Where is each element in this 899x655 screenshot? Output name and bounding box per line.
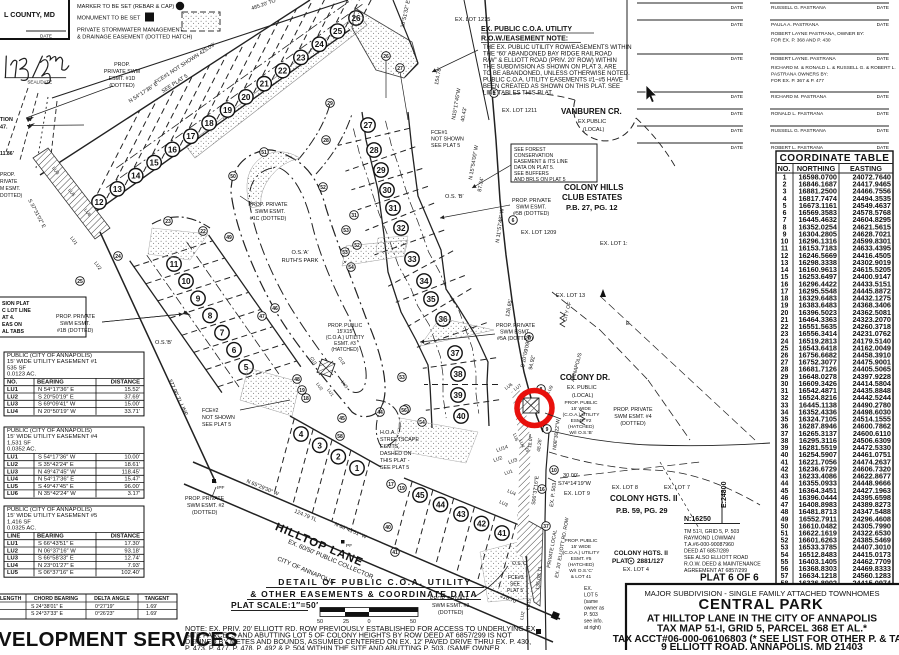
svg-text:DATE: DATE xyxy=(731,128,743,134)
svg-text:0.0123 AC.: 0.0123 AC. xyxy=(7,371,37,377)
svg-text:BEARING: BEARING xyxy=(37,380,64,386)
svg-text:15' WIDE UTILITY EASEMENT: 15' WIDE UTILITY EASEMENT #4 xyxy=(7,434,98,440)
svg-text:0°26′23″: 0°26′23″ xyxy=(95,611,114,617)
svg-text:LU5: LU5 xyxy=(7,570,19,576)
svg-text:PROP. PRIVATE: PROP. PRIVATE xyxy=(512,198,552,204)
svg-text:LU2: LU2 xyxy=(7,394,18,400)
svg-text:P.B. 59, PG. 29: P.B. 59, PG. 29 xyxy=(616,506,668,515)
svg-text:S 06°37′16″ E: S 06°37′16″ E xyxy=(38,570,74,576)
svg-text:EX. LOT 13: EX. LOT 13 xyxy=(556,293,585,299)
svg-text:PRIVATE STORMWATER MANAGEMENT: PRIVATE STORMWATER MANAGEMENT xyxy=(77,28,184,34)
svg-text:10: 10 xyxy=(781,239,789,246)
svg-text:41: 41 xyxy=(781,459,789,466)
svg-text:LU3: LU3 xyxy=(7,469,19,475)
svg-text:NO.: NO. xyxy=(7,380,18,386)
svg-text:PAULA A. PASTRANA: PAULA A. PASTRANA xyxy=(771,22,819,28)
svg-text:28: 28 xyxy=(781,367,789,374)
svg-text:CLUB ESTATES: CLUB ESTATES xyxy=(562,193,623,202)
svg-text:EX. PUBLIC C.O.A. UTILITY: EX. PUBLIC C.O.A. UTILITY xyxy=(481,26,572,33)
svg-text:EX. LOT 8: EX. LOT 8 xyxy=(612,485,638,491)
svg-text:7.93': 7.93' xyxy=(128,563,140,569)
svg-text:LU2: LU2 xyxy=(7,548,18,554)
svg-text:6: 6 xyxy=(512,218,515,224)
svg-text:SWM ESMT. #3: SWM ESMT. #3 xyxy=(432,603,469,609)
svg-text:(C.O.A.) UTILITY: (C.O.A.) UTILITY xyxy=(563,550,601,556)
svg-text:56: 56 xyxy=(401,408,407,414)
svg-text:16: 16 xyxy=(168,145,178,154)
svg-text:(DOTTED): (DOTTED) xyxy=(438,610,464,616)
svg-text:EX. PUBLIC: EX. PUBLIC xyxy=(567,385,597,391)
svg-text:(LOCAL): (LOCAL) xyxy=(583,127,604,133)
svg-text:S 20°50′19″ E: S 20°50′19″ E xyxy=(38,394,74,400)
svg-text:38: 38 xyxy=(453,370,463,379)
svg-text:9: 9 xyxy=(196,294,201,303)
svg-text:S74°14′19″W: S74°14′19″W xyxy=(558,481,592,487)
svg-text:N 06°37′16″ W: N 06°37′16″ W xyxy=(38,548,76,554)
svg-text:LU6: LU6 xyxy=(7,491,19,497)
svg-text:COORDINATE TABLE: COORDINATE TABLE xyxy=(780,153,890,164)
svg-text:15: 15 xyxy=(150,159,160,168)
svg-text:M ESMT.: M ESMT. xyxy=(0,186,20,192)
svg-text:48: 48 xyxy=(294,377,300,383)
svg-text:29: 29 xyxy=(376,166,386,175)
svg-text:48: 48 xyxy=(781,509,789,516)
svg-text:W/I O.S.'B': W/I O.S.'B' xyxy=(569,430,592,436)
svg-text:5: 5 xyxy=(783,203,787,210)
svg-text:CENTRAL PARK: CENTRAL PARK xyxy=(699,597,824,613)
svg-text:(DOTTED): (DOTTED) xyxy=(620,421,646,427)
svg-text:39: 39 xyxy=(781,445,789,452)
svg-text:(LOCAL): (LOCAL) xyxy=(572,393,593,399)
svg-text:22: 22 xyxy=(781,324,789,331)
svg-text:32: 32 xyxy=(396,224,406,233)
svg-text:19: 19 xyxy=(781,303,789,310)
svg-text:1,416 SF: 1,416 SF xyxy=(7,519,31,525)
svg-text:SEE PLAT 5: SEE PLAT 5 xyxy=(202,422,231,428)
svg-text:PLAT: PLAT xyxy=(612,558,628,565)
svg-text:LENGTH: LENGTH xyxy=(0,596,22,602)
svg-text:35: 35 xyxy=(781,417,789,424)
svg-text:EX. LOT 1215: EX. LOT 1215 xyxy=(455,17,490,23)
svg-text:MARKER TO BE SET (REBAR & CAP): MARKER TO BE SET (REBAR & CAP) xyxy=(77,4,174,10)
svg-text:53: 53 xyxy=(343,228,349,234)
svg-text:44: 44 xyxy=(781,481,789,488)
svg-text:& OTHER EASEMENTS & COORDINATE: & OTHER EASEMENTS & COORDINATE DATA xyxy=(250,589,478,599)
svg-text:(C.O.A.) UTILITY: (C.O.A.) UTILITY xyxy=(563,412,601,418)
svg-text:12: 12 xyxy=(781,253,789,260)
svg-text:2: 2 xyxy=(336,453,341,462)
svg-text:4: 4 xyxy=(783,196,787,203)
svg-text:53: 53 xyxy=(399,375,405,381)
svg-text:DATE: DATE xyxy=(877,94,889,100)
svg-text:51: 51 xyxy=(261,150,267,156)
svg-text:42: 42 xyxy=(781,466,789,473)
svg-text:50: 50 xyxy=(781,523,789,530)
svg-text:AND BRLS ON PLAT 5: AND BRLS ON PLAT 5 xyxy=(514,177,566,183)
svg-text:O.S.'C': O.S.'C' xyxy=(512,561,528,567)
svg-text:36: 36 xyxy=(781,424,789,431)
svg-text:N 49°47′45″ W: N 49°47′45″ W xyxy=(38,469,76,475)
svg-text:MONUMENT TO BE SET: MONUMENT TO BE SET xyxy=(77,16,141,22)
svg-text:43: 43 xyxy=(456,510,466,519)
svg-text:33: 33 xyxy=(407,255,417,264)
svg-text:17.30': 17.30' xyxy=(124,541,140,547)
svg-text:COLONY HGTS. II: COLONY HGTS. II xyxy=(610,494,677,503)
svg-text:O.S. ′B′: O.S. ′B′ xyxy=(445,194,464,200)
svg-text:FCE#2: FCE#2 xyxy=(202,408,219,414)
svg-text:SWM ESMT. #2: SWM ESMT. #2 xyxy=(187,503,224,509)
svg-text:4: 4 xyxy=(299,430,304,439)
svg-text:10.00': 10.00' xyxy=(124,455,140,461)
svg-text:N 20°50′19″ W: N 20°50′19″ W xyxy=(38,409,76,415)
svg-text:EX. LOT 4: EX. LOT 4 xyxy=(623,567,649,573)
svg-text:DATE: DATE xyxy=(731,22,743,28)
svg-text:LU3: LU3 xyxy=(7,556,19,562)
svg-text:PROP. PRIVATE: PROP. PRIVATE xyxy=(248,202,288,208)
svg-text:ROBERT LAYNE PASTRANA, OWNER: ROBERT LAYNE PASTRANA, OWNER BY: xyxy=(771,31,864,37)
svg-text:N 23°01′27″ E: N 23°01′27″ E xyxy=(38,563,74,569)
svg-text:L COUNTY, MD: L COUNTY, MD xyxy=(4,10,55,19)
svg-text:TION: TION xyxy=(0,117,13,123)
svg-text:17: 17 xyxy=(186,132,196,141)
svg-text:52: 52 xyxy=(781,538,789,545)
svg-text:LU3: LU3 xyxy=(7,402,19,408)
svg-text:FCE#1: FCE#1 xyxy=(431,130,448,136)
svg-text:PROP. PUBLIC: PROP. PUBLIC xyxy=(565,538,599,544)
svg-text:26: 26 xyxy=(383,54,389,60)
svg-text:53: 53 xyxy=(781,545,789,552)
svg-text:15.00': 15.00' xyxy=(124,402,140,408)
svg-text:COLONY DR.: COLONY DR. xyxy=(560,373,610,382)
svg-text:27: 27 xyxy=(363,121,373,130)
svg-text:27: 27 xyxy=(397,66,403,72)
svg-text:DATE: DATE xyxy=(877,56,889,62)
svg-text:LINE TABLES THIS PLAT.: LINE TABLES THIS PLAT. xyxy=(483,91,553,97)
svg-text:8: 8 xyxy=(783,224,787,231)
svg-text:ESMT. #5: ESMT. #5 xyxy=(571,556,592,562)
svg-text:DATE: DATE xyxy=(731,111,743,117)
svg-text:W/I O.S.'C': W/I O.S.'C' xyxy=(569,568,593,574)
svg-text:7: 7 xyxy=(220,329,225,338)
svg-text:& DRAINAGE EASEMENT (DOTTED HA: & DRAINAGE EASEMENT (DOTTED HATCH) xyxy=(77,35,193,41)
svg-text:O.S.′A′: O.S.′A′ xyxy=(291,250,308,256)
svg-text:9: 9 xyxy=(546,427,549,433)
svg-text:20: 20 xyxy=(781,310,789,317)
svg-text:RONALD L. PASTRANA: RONALD L. PASTRANA xyxy=(771,111,824,117)
svg-text:6: 6 xyxy=(783,210,787,217)
svg-text:LU4: LU4 xyxy=(7,409,19,415)
svg-text:56: 56 xyxy=(781,566,789,573)
svg-text:15' WIDE UTILITY EASEMENT: 15' WIDE UTILITY EASEMENT #5 xyxy=(7,513,98,519)
svg-text:DATE: DATE xyxy=(877,111,889,117)
svg-text:COLONY HILLS: COLONY HILLS xyxy=(564,183,624,192)
svg-text:RICHARD M. PASTRANA: RICHARD M. PASTRANA xyxy=(771,94,827,100)
svg-text:18: 18 xyxy=(303,396,309,402)
svg-text:535 SF: 535 SF xyxy=(7,365,26,371)
svg-text:19: 19 xyxy=(399,486,405,492)
svg-text:(DOTTED): (DOTTED) xyxy=(192,510,218,516)
svg-text:46: 46 xyxy=(781,495,789,502)
svg-text:PLAT 6 OF 6: PLAT 6 OF 6 xyxy=(700,573,759,584)
svg-text:30: 30 xyxy=(781,381,789,388)
svg-text:49: 49 xyxy=(226,235,232,241)
svg-text:24: 24 xyxy=(115,254,121,260)
svg-text:DATE: DATE xyxy=(731,5,743,11)
svg-text:29: 29 xyxy=(327,101,333,107)
svg-text:S 66°43′51″ E: S 66°43′51″ E xyxy=(38,541,74,547)
svg-text:NOT SHOWN: NOT SHOWN xyxy=(431,137,464,143)
svg-text:23: 23 xyxy=(781,331,789,338)
svg-text:FOR EX. P. 368 AND P. 430: FOR EX. P. 368 AND P. 430 xyxy=(771,38,831,44)
svg-text:TM 51-I, GRID 5, P. 503: TM 51-I, GRID 5, P. 503 xyxy=(684,529,739,535)
svg-text:37.69': 37.69' xyxy=(124,394,140,400)
svg-text:39: 39 xyxy=(453,391,463,400)
svg-text:COLONY HGTS. II: COLONY HGTS. II xyxy=(614,550,668,557)
svg-text:& LOT 41: & LOT 41 xyxy=(571,574,592,580)
svg-text:1.69': 1.69' xyxy=(146,604,157,610)
svg-text:54: 54 xyxy=(781,552,789,559)
svg-text:FOR EX. P. 367 & P. 477: FOR EX. P. 367 & P. 477 xyxy=(771,78,824,84)
svg-text:PROP. PRIVATE: PROP. PRIVATE xyxy=(613,407,653,413)
svg-text:41: 41 xyxy=(497,529,507,538)
svg-text:118.45': 118.45' xyxy=(122,469,140,475)
svg-text:S 49°47′45″ E: S 49°47′45″ E xyxy=(38,484,74,490)
svg-text:(HATCHED): (HATCHED) xyxy=(568,424,594,430)
svg-text:NO.: NO. xyxy=(778,164,791,173)
svg-text:LU5: LU5 xyxy=(7,484,19,490)
svg-text:PRIVATE SWM: PRIVATE SWM xyxy=(104,69,140,75)
svg-text:96.00': 96.00' xyxy=(124,484,140,490)
svg-text:14: 14 xyxy=(131,172,141,181)
svg-text:PROP.: PROP. xyxy=(114,62,130,68)
svg-text:RUTH'S PARK: RUTH'S PARK xyxy=(282,258,319,264)
svg-text:25: 25 xyxy=(781,345,789,352)
svg-text:S 24°37′33″ E: S 24°37′33″ E xyxy=(31,611,64,617)
svg-text:3.17': 3.17' xyxy=(128,491,140,497)
svg-text:IPF: IPF xyxy=(217,485,225,491)
svg-text:15: 15 xyxy=(781,274,789,281)
svg-text:0.0325 AC.: 0.0325 AC. xyxy=(7,525,37,531)
svg-text:PASTRANA OWNERS BY:: PASTRANA OWNERS BY: xyxy=(771,72,828,78)
svg-text:17: 17 xyxy=(781,288,789,295)
svg-text:PUBLIC (CITY OF ANNAPOLIS): PUBLIC (CITY OF ANNAPOLIS) xyxy=(7,353,92,359)
svg-text:TO BE ABANDONED, UNLESS OT: TO BE ABANDONED, UNLESS OTHERWISE NOTED. xyxy=(483,71,630,77)
svg-text:SWM ESMT.: SWM ESMT. xyxy=(255,209,285,215)
svg-text:14: 14 xyxy=(781,267,789,274)
svg-text:50: 50 xyxy=(230,174,236,180)
svg-text:DISTANCE: DISTANCE xyxy=(111,534,140,540)
svg-text:FCE#3: FCE#3 xyxy=(508,575,524,581)
svg-text:24: 24 xyxy=(315,40,325,49)
svg-text:13: 13 xyxy=(781,260,789,267)
svg-text:at right): at right) xyxy=(584,625,601,631)
svg-text:EX. LOT 1211: EX. LOT 1211 xyxy=(502,108,537,114)
svg-text:12: 12 xyxy=(94,198,104,207)
svg-text:T.A.#6-000-90087960: T.A.#6-000-90087960 xyxy=(684,542,734,548)
svg-text:CHORD BEARING: CHORD BEARING xyxy=(34,596,78,602)
svg-text:ESMT. #1D: ESMT. #1D xyxy=(109,76,136,82)
svg-text:BEARING: BEARING xyxy=(37,534,64,540)
svg-text:(HATCHED): (HATCHED) xyxy=(331,347,358,353)
svg-text:9: 9 xyxy=(783,231,787,238)
svg-text:51: 51 xyxy=(781,531,789,538)
svg-text:93.18': 93.18' xyxy=(124,548,140,554)
svg-text:PUBLIC (CITY OF ANNAPOLIS): PUBLIC (CITY OF ANNAPOLIS) xyxy=(7,428,92,434)
svg-text:33: 33 xyxy=(781,402,789,409)
svg-text:32: 32 xyxy=(781,395,789,402)
svg-text:1,531 SF: 1,531 SF xyxy=(7,440,31,446)
svg-text:31: 31 xyxy=(388,204,398,213)
svg-text:PUBLIC (CITY OF ANNAPOLIS): PUBLIC (CITY OF ANNAPOLIS) xyxy=(7,507,92,513)
svg-text:42: 42 xyxy=(477,520,487,529)
svg-text:12.74': 12.74' xyxy=(124,556,140,562)
svg-text:44: 44 xyxy=(436,501,446,510)
svg-text:SION PLAT: SION PLAT xyxy=(2,301,30,307)
svg-text:DATE: DATE xyxy=(731,56,743,62)
svg-text:THE “60′ ABANDONED BAY RID: THE “60′ ABANDONED BAY RIDGE RAILROAD xyxy=(483,52,613,58)
svg-text:RUSSELL G. PASTRANA: RUSSELL G. PASTRANA xyxy=(771,128,827,134)
svg-text:0.0352 AC.: 0.0352 AC. xyxy=(7,446,37,452)
svg-text:EX. LOT 1:: EX. LOT 1: xyxy=(600,241,628,247)
svg-text:27: 27 xyxy=(781,360,789,367)
svg-text:21: 21 xyxy=(781,317,789,324)
svg-text:R.O.W. DEED & MAINTENANCE: R.O.W. DEED & MAINTENANCE xyxy=(684,562,761,568)
svg-text:15.52': 15.52' xyxy=(124,387,140,393)
svg-text:52: 52 xyxy=(354,243,360,249)
svg-text:23: 23 xyxy=(296,53,306,62)
svg-text:DATE: DATE xyxy=(877,128,889,134)
svg-text:R/W” & ELLIOTT ROAD (PRIV.: R/W” & ELLIOTT ROAD (PRIV. 20′ ROW) WITH… xyxy=(483,58,617,64)
svg-text:DASHED ON: DASHED ON xyxy=(380,451,412,457)
svg-text:H.O.A.: H.O.A. xyxy=(380,430,396,436)
svg-text:16: 16 xyxy=(539,487,545,493)
svg-text:SEAL/DATE: SEAL/DATE xyxy=(27,79,52,84)
svg-text:RIVATE: RIVATE xyxy=(0,179,18,185)
svg-text:47: 47 xyxy=(781,502,789,509)
svg-text:31: 31 xyxy=(781,388,789,395)
svg-text:9 ELLIOTT ROAD, ANNAPOLIS, MD: 9 ELLIOTT ROAD, ANNAPOLIS, MD 21403 xyxy=(661,642,863,650)
svg-text:DELTA ANGLE: DELTA ANGLE xyxy=(94,596,130,602)
svg-text:45: 45 xyxy=(415,491,425,500)
svg-text:AT 4.: AT 4. xyxy=(2,315,15,321)
svg-text:DATE: DATE xyxy=(731,145,743,151)
svg-text:34: 34 xyxy=(419,277,429,286)
svg-text:58: 58 xyxy=(337,434,343,440)
svg-text:LU4: LU4 xyxy=(7,563,19,569)
svg-text:13: 13 xyxy=(113,185,123,194)
svg-text:33.71': 33.71' xyxy=(124,409,140,415)
svg-text:SEE PLAT 5: SEE PLAT 5 xyxy=(380,465,409,471)
svg-text:R.O.W./EASEMENT NOTE:: R.O.W./EASEMENT NOTE: xyxy=(481,36,568,43)
svg-text:S 24°38′01″ E: S 24°38′01″ E xyxy=(31,604,64,610)
svg-text:57: 57 xyxy=(781,573,789,580)
svg-text:ROBERT LAYNE. PASTRANA: ROBERT LAYNE. PASTRANA xyxy=(771,56,836,62)
svg-text:(HATCHED): (HATCHED) xyxy=(568,562,594,568)
svg-text:PROP.: PROP. xyxy=(0,172,15,178)
svg-text:1.69': 1.69' xyxy=(146,611,157,617)
svg-text:RICHARD M. & RONALD L. & RUSS: RICHARD M. & RONALD L. & RUSSELL G. & RO… xyxy=(771,65,896,71)
svg-text:EX.: EX. xyxy=(584,586,592,592)
svg-text:RAYMOND LOWMAN: RAYMOND LOWMAN xyxy=(684,536,735,542)
svg-text:25: 25 xyxy=(77,279,83,285)
svg-text:10: 10 xyxy=(551,468,557,474)
svg-text:52: 52 xyxy=(320,185,326,191)
svg-text:TANGENT: TANGENT xyxy=(145,596,171,602)
svg-text:N 54°17′36″ E: N 54°17′36″ E xyxy=(38,387,74,393)
svg-text:54: 54 xyxy=(348,265,354,271)
svg-text:47: 47 xyxy=(259,314,265,320)
svg-text:11: 11 xyxy=(170,260,179,269)
svg-text:26: 26 xyxy=(781,353,789,360)
svg-text:30: 30 xyxy=(382,186,392,195)
svg-text:PLAT 5: PLAT 5 xyxy=(507,588,523,594)
svg-text:E:24800: E:24800 xyxy=(721,481,728,508)
svg-text:DATE: DATE xyxy=(877,5,889,11)
svg-text:10: 10 xyxy=(181,277,191,286)
svg-text:102.40': 102.40' xyxy=(121,570,140,576)
svg-text:DATE: DATE xyxy=(40,34,52,39)
svg-text:7: 7 xyxy=(783,217,787,224)
svg-text:see info.: see info. xyxy=(584,619,603,625)
svg-text:25: 25 xyxy=(333,27,343,36)
svg-text:NOT SHOWN: NOT SHOWN xyxy=(202,415,235,421)
svg-text:6: 6 xyxy=(232,346,237,355)
svg-text:15' WIDE: 15' WIDE xyxy=(571,544,591,550)
svg-text:SWM ESMT.: SWM ESMT. xyxy=(60,321,90,327)
svg-text:P.B. 27, PG. 12: P.B. 27, PG. 12 xyxy=(566,203,618,212)
svg-text:PLAT SCALE:1″=50′: PLAT SCALE:1″=50′ xyxy=(231,600,319,610)
svg-text:VELOPMENT SERVICES: VELOPMENT SERVICES xyxy=(0,628,238,650)
svg-text:37: 37 xyxy=(543,524,549,530)
svg-text:S 66°58′33″ E: S 66°58′33″ E xyxy=(38,556,74,562)
svg-text:(same: (same xyxy=(584,599,598,605)
svg-text:owner as: owner as xyxy=(584,606,605,612)
svg-text:2: 2 xyxy=(783,182,787,189)
svg-text:21: 21 xyxy=(260,80,270,89)
svg-text:O.S.′B′: O.S.′B′ xyxy=(155,340,172,346)
svg-text:VANBUREN CR.: VANBUREN CR. xyxy=(561,107,622,116)
svg-text:#1C (DOTTED): #1C (DOTTED) xyxy=(250,216,287,222)
svg-text:SEE: SEE xyxy=(510,582,521,588)
svg-text:PROP. PUBLIC: PROP. PUBLIC xyxy=(565,400,599,406)
svg-text:N 35°42′24″ W: N 35°42′24″ W xyxy=(38,491,76,497)
svg-text:PROP. PRIVATE: PROP. PRIVATE xyxy=(56,314,96,320)
svg-text:18: 18 xyxy=(205,119,215,128)
svg-text:2881/127: 2881/127 xyxy=(637,558,664,565)
svg-text:23: 23 xyxy=(165,219,171,225)
svg-text:EX. LOT 7: EX. LOT 7 xyxy=(664,485,690,491)
svg-text:3: 3 xyxy=(317,441,322,450)
svg-text:24: 24 xyxy=(781,338,789,345)
svg-text:3: 3 xyxy=(783,189,787,196)
svg-text:LOT 5: LOT 5 xyxy=(584,593,598,599)
svg-text:#5A (DOTTED): #5A (DOTTED) xyxy=(497,336,533,342)
svg-text:(DOTTED): (DOTTED) xyxy=(109,83,135,89)
svg-text:EX. LOT 1209: EX. LOT 1209 xyxy=(521,230,556,236)
svg-text:11.86': 11.86' xyxy=(0,151,14,157)
svg-text:38: 38 xyxy=(781,438,789,445)
svg-text:DATE: DATE xyxy=(731,94,743,100)
svg-text:8: 8 xyxy=(208,312,213,321)
svg-text:LU4: LU4 xyxy=(7,477,19,483)
svg-text:1: 1 xyxy=(783,175,787,182)
svg-text:15.47': 15.47' xyxy=(124,477,140,483)
svg-text:0°27′19″: 0°27′19″ xyxy=(95,604,114,610)
svg-text:11: 11 xyxy=(781,246,788,253)
svg-text:29: 29 xyxy=(781,374,789,381)
svg-text:LU1: LU1 xyxy=(7,387,19,393)
svg-text:41: 41 xyxy=(392,550,398,556)
